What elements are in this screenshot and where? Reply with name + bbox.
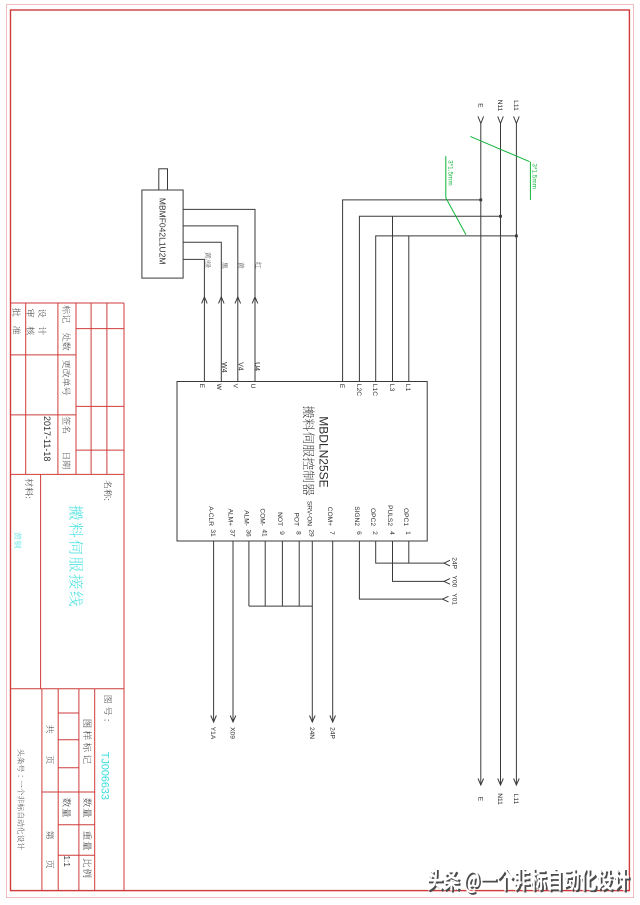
svg-text:OPC2: OPC2: [369, 508, 376, 526]
svg-text:37: 37: [228, 529, 235, 537]
svg-text:24P: 24P: [328, 727, 335, 739]
svg-text:V4: V4: [237, 362, 244, 371]
svg-text:SIGN2: SIGN2: [353, 506, 360, 526]
svg-text:POT: POT: [293, 512, 300, 526]
svg-text:L11: L11: [512, 100, 519, 111]
svg-text:E: E: [476, 797, 483, 802]
svg-text:ALM-: ALM-: [242, 510, 249, 526]
svg-text:U4: U4: [253, 362, 260, 371]
svg-text:PULS2: PULS2: [386, 505, 393, 526]
svg-text:N11: N11: [496, 793, 503, 805]
svg-text:4: 4: [388, 531, 395, 535]
svg-text:1: 1: [404, 531, 411, 535]
svg-text:E: E: [338, 384, 345, 389]
svg-text:MBMF042L1U2M: MBMF042L1U2M: [157, 198, 167, 265]
svg-text:L1: L1: [404, 384, 411, 392]
svg-text:Y00: Y00: [451, 576, 458, 588]
svg-text:W: W: [215, 384, 222, 391]
svg-text:36: 36: [244, 529, 251, 537]
svg-text:X09: X09: [229, 727, 236, 739]
svg-text:SRV-ON: SRV-ON: [306, 501, 313, 526]
svg-text:41: 41: [261, 529, 268, 537]
svg-text:U: U: [249, 384, 256, 389]
svg-text:L11: L11: [512, 794, 519, 805]
svg-text:8: 8: [295, 531, 302, 535]
svg-text:6: 6: [355, 531, 362, 535]
svg-text:9: 9: [278, 531, 285, 535]
svg-text:L2C: L2C: [355, 384, 362, 396]
svg-text:N11: N11: [496, 100, 503, 112]
svg-text:1:1: 1:1: [62, 856, 71, 868]
svg-text:L1C: L1C: [371, 384, 378, 396]
svg-text:A-CLR: A-CLR: [207, 506, 214, 526]
svg-text:OPC1: OPC1: [402, 508, 409, 526]
svg-text:L3: L3: [388, 384, 395, 392]
svg-text:3*1.5mm: 3*1.5mm: [531, 163, 538, 189]
svg-text:NOT: NOT: [276, 512, 283, 526]
svg-text:Y1A: Y1A: [209, 727, 216, 740]
svg-text:COM-: COM-: [259, 508, 266, 526]
svg-text:3*1.5mm: 3*1.5mm: [446, 160, 453, 186]
svg-text:W4: W4: [220, 362, 227, 373]
svg-text:31: 31: [209, 529, 216, 537]
svg-text:7: 7: [328, 531, 335, 535]
svg-text:COM+: COM+: [326, 507, 333, 526]
svg-text:Y01: Y01: [451, 593, 458, 605]
svg-text:TJ006633: TJ006633: [99, 752, 111, 800]
svg-text:2: 2: [371, 531, 378, 535]
svg-text:ALM+: ALM+: [226, 509, 233, 527]
svg-text:24P: 24P: [451, 557, 458, 569]
svg-text:E: E: [198, 384, 205, 389]
svg-text:24N: 24N: [308, 727, 315, 739]
svg-text:MBDLN25SE: MBDLN25SE: [317, 416, 331, 487]
svg-text:V: V: [232, 384, 239, 389]
svg-text:E: E: [476, 103, 483, 108]
svg-text:29: 29: [308, 529, 315, 537]
svg-text:2017-11-18: 2017-11-18: [42, 416, 52, 461]
